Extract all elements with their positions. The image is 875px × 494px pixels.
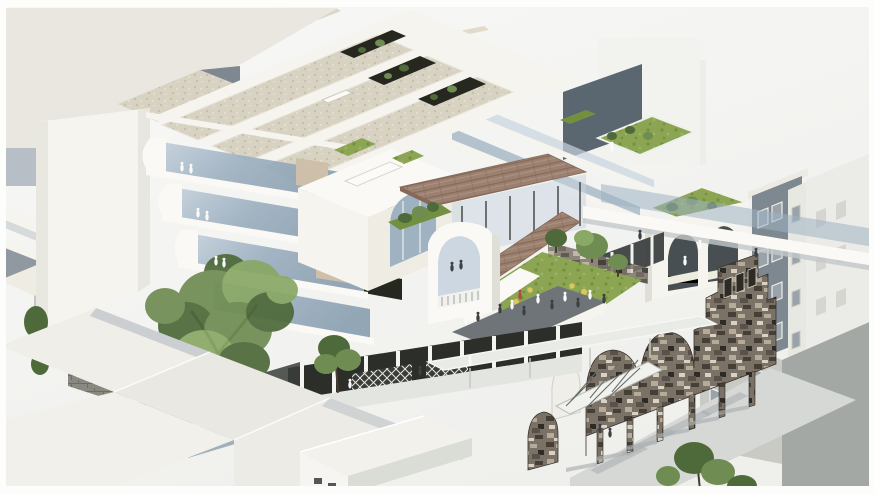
render-canvas xyxy=(0,0,875,494)
arch-tower xyxy=(428,222,500,324)
architectural-rendering xyxy=(0,0,875,494)
stone-fragment xyxy=(528,412,558,470)
